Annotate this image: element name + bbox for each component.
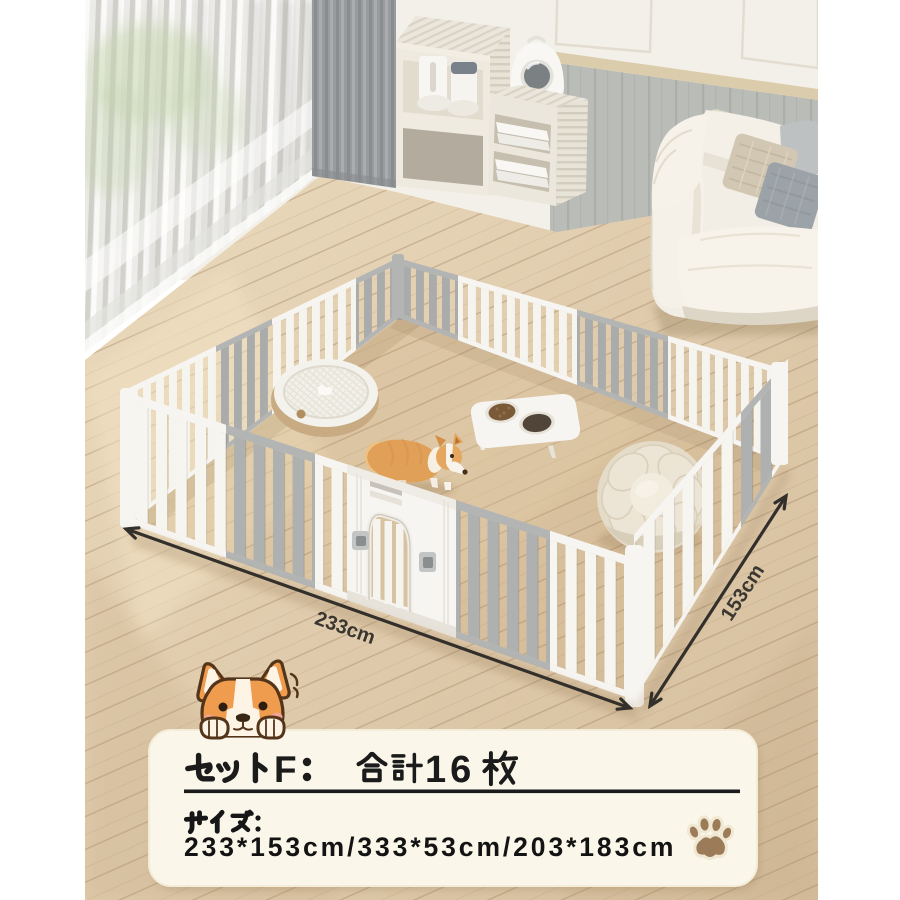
svg-text:F: F bbox=[274, 749, 297, 790]
svg-text:16: 16 bbox=[425, 749, 475, 791]
svg-text:233*153cm/333*53cm/203*183cm: 233*153cm/333*53cm/203*183cm bbox=[184, 832, 676, 862]
